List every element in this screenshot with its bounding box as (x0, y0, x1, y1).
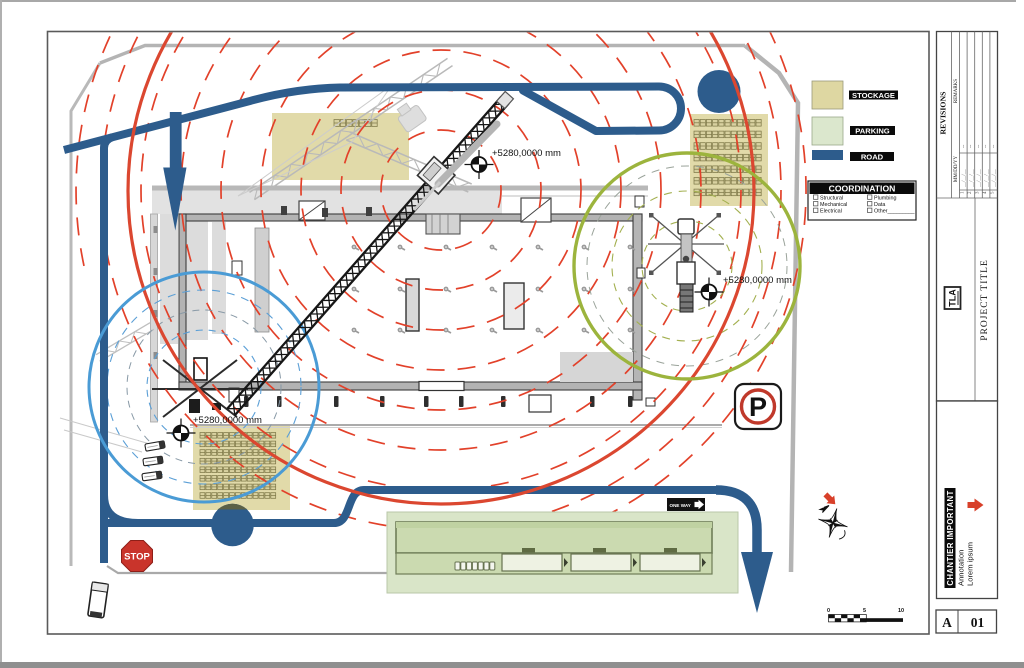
svg-text:ONE WAY: ONE WAY (670, 503, 691, 508)
svg-text:--: -- (984, 144, 989, 148)
svg-text:P: P (749, 392, 767, 422)
svg-text:MM/DD/YY: MM/DD/YY (954, 156, 959, 183)
svg-text:REVISIONS: REVISIONS (939, 92, 948, 135)
svg-text:CHANTIER IMPORTANT: CHANTIER IMPORTANT (946, 490, 955, 585)
svg-text:--: -- (977, 144, 982, 148)
svg-text:0: 0 (827, 608, 830, 614)
svg-text:Data: Data (874, 202, 885, 208)
svg-text:__/__/__: __/__/__ (985, 169, 990, 188)
svg-text:STOP: STOP (124, 552, 150, 563)
svg-text:Electrical: Electrical (820, 209, 842, 215)
svg-text:+5280,0000 mm: +5280,0000 mm (193, 415, 262, 426)
svg-text:COORDINATION: COORDINATION (829, 184, 896, 194)
svg-text:REMARKS: REMARKS (954, 79, 959, 103)
svg-text:--: -- (992, 144, 997, 148)
svg-text:PROJECT TITLE: PROJECT TITLE (980, 259, 990, 341)
svg-text:__/__/__: __/__/__ (977, 169, 982, 188)
svg-text:A: A (942, 615, 952, 630)
svg-text:10: 10 (898, 608, 904, 614)
svg-text:Other_________: Other_________ (874, 209, 915, 215)
svg-text:Lorem ipsum: Lorem ipsum (966, 542, 975, 586)
svg-text:Structural: Structural (820, 196, 843, 202)
svg-text:--: -- (961, 144, 966, 148)
svg-text:__/__/__: __/__/__ (962, 169, 967, 188)
svg-text:TLA: TLA (948, 289, 958, 307)
svg-text:--: -- (969, 144, 974, 148)
svg-text:__/__/__: __/__/__ (992, 169, 997, 188)
svg-text:5: 5 (863, 608, 866, 614)
svg-text:ROAD: ROAD (861, 153, 884, 162)
svg-text:PARKING: PARKING (855, 127, 890, 136)
svg-text:01: 01 (971, 615, 985, 630)
svg-text:+5280,0000 mm: +5280,0000 mm (492, 148, 561, 159)
svg-text:STOCKAGE: STOCKAGE (852, 91, 895, 100)
svg-text:Annotation: Annotation (957, 550, 966, 586)
svg-text:Plumbing: Plumbing (874, 196, 896, 202)
svg-text:+5280,0000 mm: +5280,0000 mm (723, 275, 792, 286)
svg-text:Mechanical: Mechanical (820, 202, 847, 208)
svg-text:__/__/__: __/__/__ (969, 169, 974, 188)
